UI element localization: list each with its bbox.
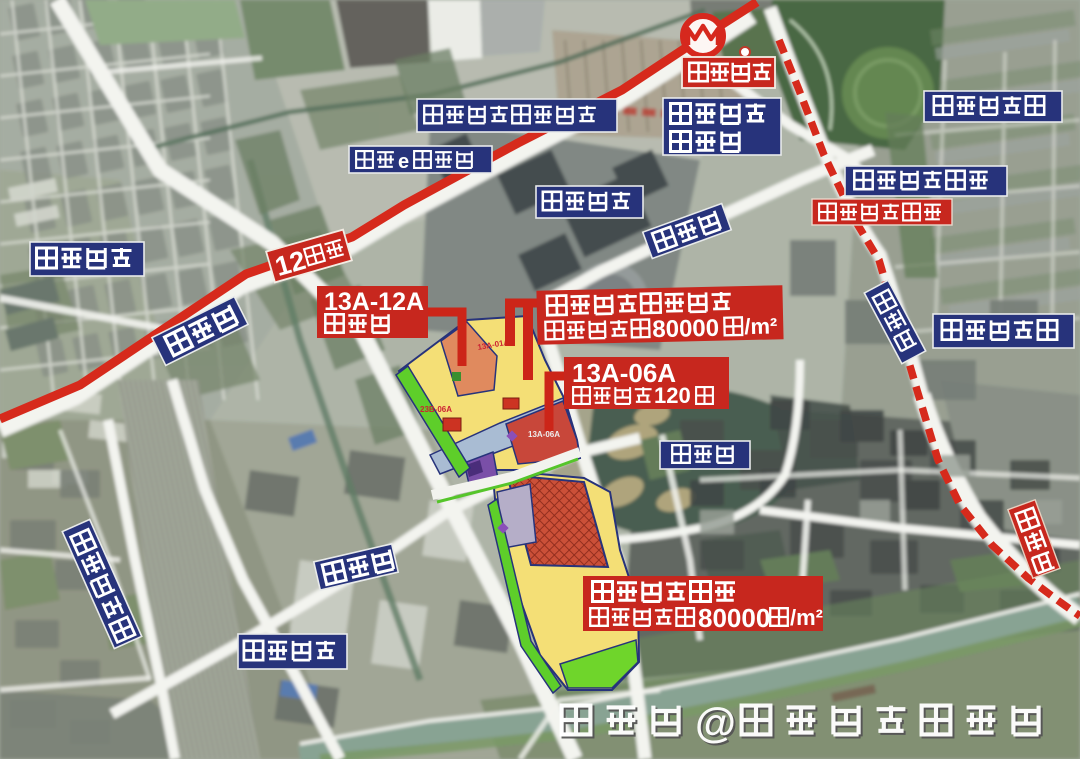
- svg-text:23B-06A: 23B-06A: [420, 405, 452, 414]
- svg-text:/m²: /m²: [790, 605, 823, 630]
- svg-text:80000: 80000: [652, 315, 719, 344]
- svg-text:13A-12A: 13A-12A: [324, 288, 424, 316]
- svg-text:120: 120: [654, 383, 691, 408]
- svg-text:80000: 80000: [698, 603, 770, 633]
- svg-text:@: @: [695, 699, 736, 746]
- svg-text:e: e: [398, 151, 409, 173]
- svg-text:13A-06A: 13A-06A: [528, 430, 560, 439]
- svg-text:/m²: /m²: [744, 313, 778, 339]
